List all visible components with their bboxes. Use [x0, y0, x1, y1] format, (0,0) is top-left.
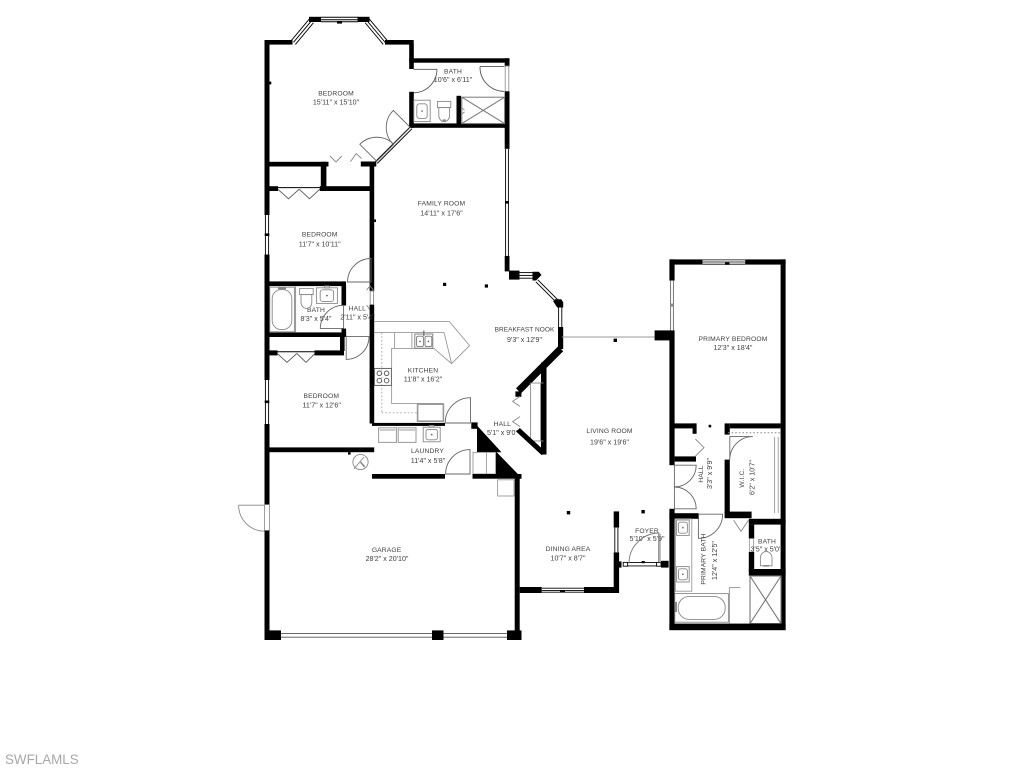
svg-text:10'6" x 6'11": 10'6" x 6'11" — [434, 76, 473, 84]
svg-text:FOYER: FOYER — [635, 528, 659, 535]
svg-text:HALL: HALL — [349, 305, 366, 312]
svg-text:3'3" x 9'9": 3'3" x 9'9" — [706, 458, 714, 489]
svg-text:DINING AREA: DINING AREA — [546, 546, 591, 553]
svg-text:BEDROOM: BEDROOM — [303, 393, 339, 400]
svg-text:6'2" x 10'7": 6'2" x 10'7" — [749, 460, 757, 495]
svg-text:2'11" x 5'4": 2'11" x 5'4" — [340, 313, 375, 321]
svg-text:FAMILY ROOM: FAMILY ROOM — [418, 201, 466, 208]
svg-text:11'8" x 16'2": 11'8" x 16'2" — [404, 376, 443, 384]
svg-text:LAUNDRY: LAUNDRY — [411, 448, 444, 455]
svg-text:9'3" x 12'9": 9'3" x 12'9" — [507, 336, 542, 344]
svg-text:HALL: HALL — [698, 465, 705, 482]
svg-text:W.I.C.: W.I.C. — [739, 468, 746, 487]
svg-text:SWFLAMLS: SWFLAMLS — [5, 752, 79, 767]
svg-text:12'3" x 18'4": 12'3" x 18'4" — [714, 344, 753, 352]
svg-text:PRIMARY BATH: PRIMARY BATH — [701, 533, 708, 584]
svg-text:5'1" x 9'0": 5'1" x 9'0" — [487, 429, 518, 437]
svg-text:HALL: HALL — [494, 421, 511, 428]
svg-text:GARAGE: GARAGE — [372, 547, 402, 554]
svg-text:12'4" x 12'5": 12'4" x 12'5" — [711, 541, 719, 580]
svg-text:LIVING ROOM: LIVING ROOM — [586, 428, 633, 435]
svg-text:11'7" x 12'6": 11'7" x 12'6" — [303, 402, 342, 410]
svg-text:14'11" x 17'6": 14'11" x 17'6" — [420, 210, 463, 218]
svg-text:BREAKFAST NOOK: BREAKFAST NOOK — [495, 326, 555, 333]
svg-text:BEDROOM: BEDROOM — [302, 232, 338, 239]
svg-text:3'5" x 5'0": 3'5" x 5'0" — [750, 545, 781, 553]
svg-text:28'2" x 20'10": 28'2" x 20'10" — [366, 555, 409, 563]
svg-text:11'4" x 5'8": 11'4" x 5'8" — [411, 457, 446, 465]
svg-text:BEDROOM: BEDROOM — [318, 90, 354, 97]
svg-text:BATH: BATH — [444, 68, 462, 75]
svg-text:10'7" x 8'7": 10'7" x 8'7" — [551, 554, 586, 562]
svg-text:PRIMARY BEDROOM: PRIMARY BEDROOM — [699, 336, 768, 343]
svg-text:11'7" x 10'11": 11'7" x 10'11" — [299, 240, 341, 248]
svg-text:BATH: BATH — [307, 307, 325, 314]
svg-text:15'11" x 15'10": 15'11" x 15'10" — [313, 99, 360, 107]
svg-text:KITCHEN: KITCHEN — [408, 367, 438, 374]
svg-text:8'3" x 5'4": 8'3" x 5'4" — [300, 315, 331, 323]
svg-text:19'6" x 19'6": 19'6" x 19'6" — [590, 438, 629, 446]
